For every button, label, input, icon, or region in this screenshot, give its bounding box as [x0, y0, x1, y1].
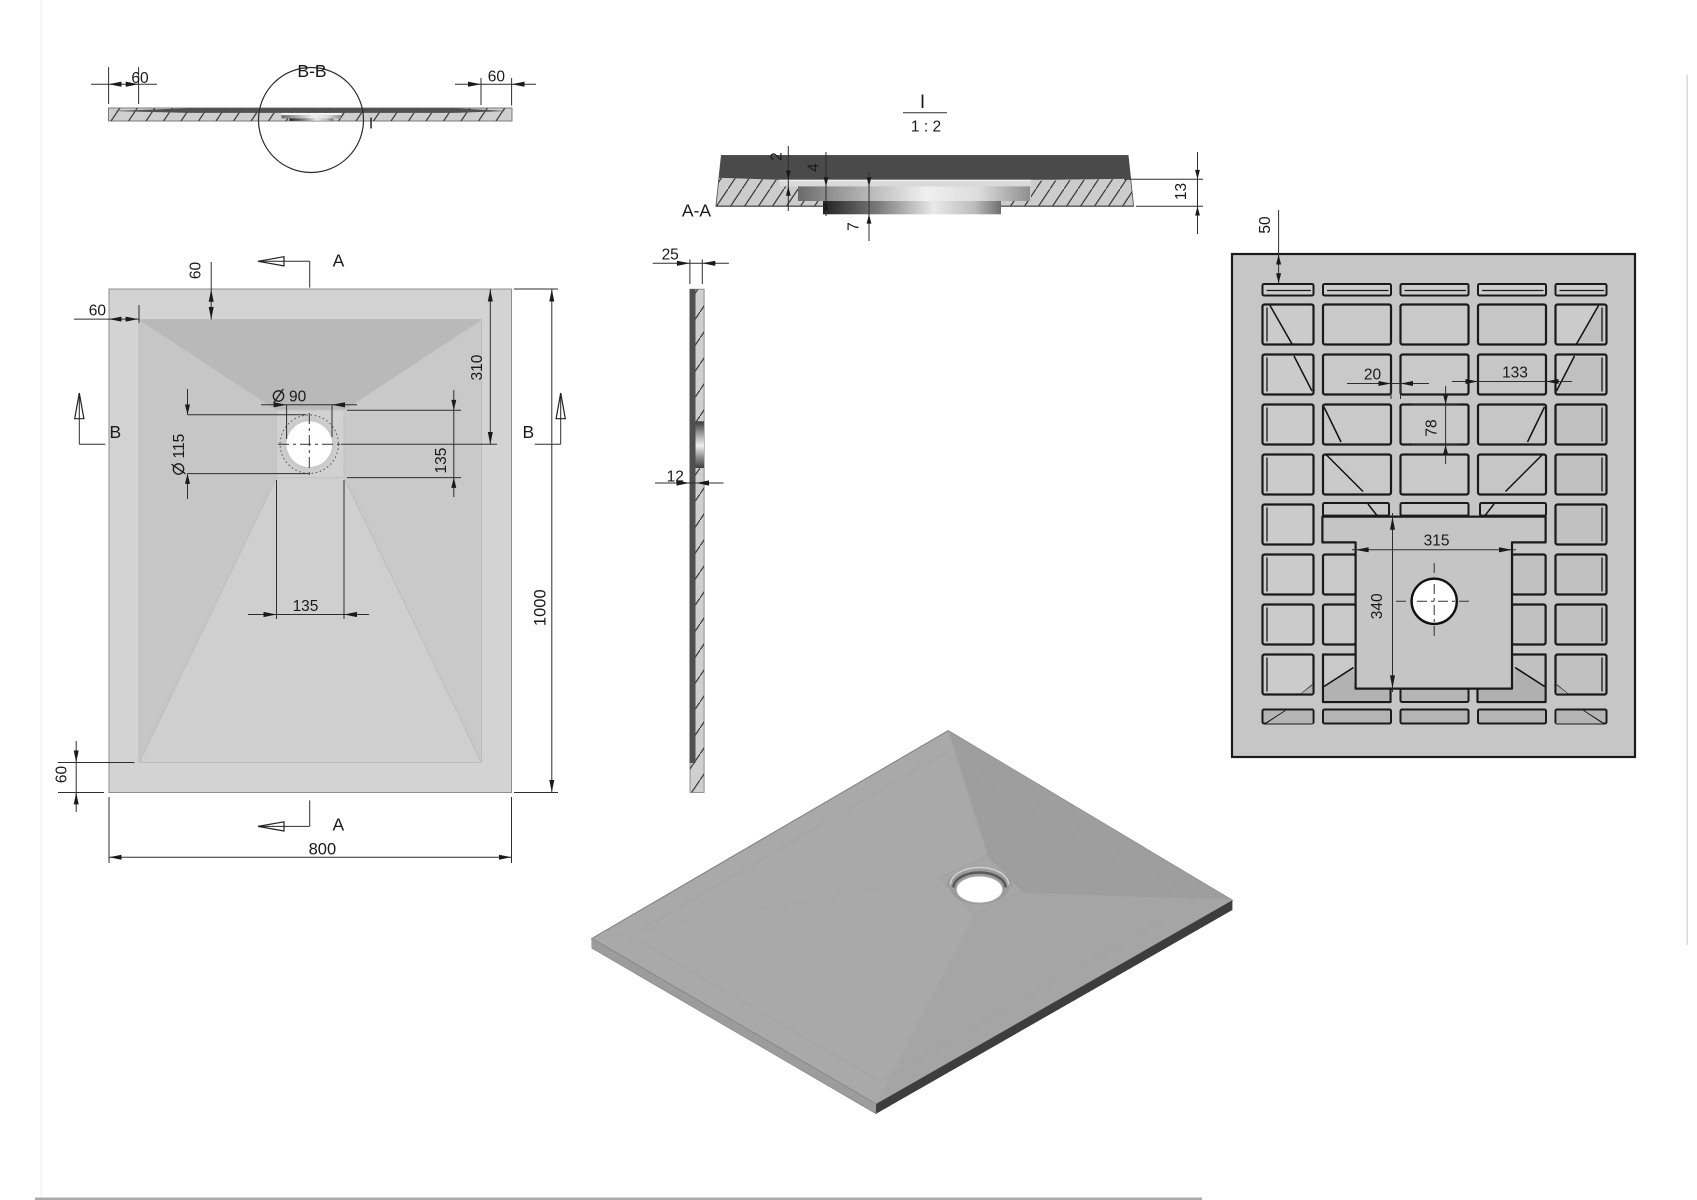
svg-text:90: 90 [289, 389, 307, 406]
svg-text:A: A [333, 250, 345, 270]
svg-text:60: 60 [54, 766, 71, 784]
svg-text:60: 60 [488, 69, 506, 86]
svg-text:I: I [369, 116, 373, 133]
svg-text:115: 115 [171, 434, 188, 459]
svg-text:1000: 1000 [532, 589, 550, 626]
svg-text:315: 315 [1424, 533, 1450, 550]
svg-text:13: 13 [1173, 183, 1190, 200]
svg-text:340: 340 [1369, 593, 1386, 619]
svg-text:135: 135 [433, 448, 450, 474]
svg-text:B: B [523, 422, 535, 442]
svg-text:60: 60 [89, 303, 107, 320]
svg-text:A: A [332, 815, 344, 835]
svg-text:4: 4 [806, 163, 823, 172]
svg-text:60: 60 [131, 70, 149, 87]
svg-text:2: 2 [769, 152, 786, 161]
svg-text:78: 78 [1424, 419, 1441, 436]
svg-text:25: 25 [662, 247, 679, 264]
svg-text:133: 133 [1502, 365, 1528, 382]
svg-text:800: 800 [309, 841, 337, 859]
svg-text:60: 60 [188, 262, 205, 280]
svg-text:A-A: A-A [682, 201, 712, 221]
svg-text:B-B: B-B [297, 61, 326, 81]
svg-text:135: 135 [293, 598, 319, 615]
svg-text:20: 20 [1364, 367, 1382, 384]
svg-text:1 : 2: 1 : 2 [911, 119, 941, 136]
svg-text:50: 50 [1257, 216, 1274, 234]
svg-text:B: B [110, 422, 122, 442]
svg-text:7: 7 [846, 222, 863, 231]
svg-text:310: 310 [469, 354, 486, 380]
svg-text:12: 12 [667, 468, 684, 485]
svg-text:I: I [920, 92, 925, 113]
